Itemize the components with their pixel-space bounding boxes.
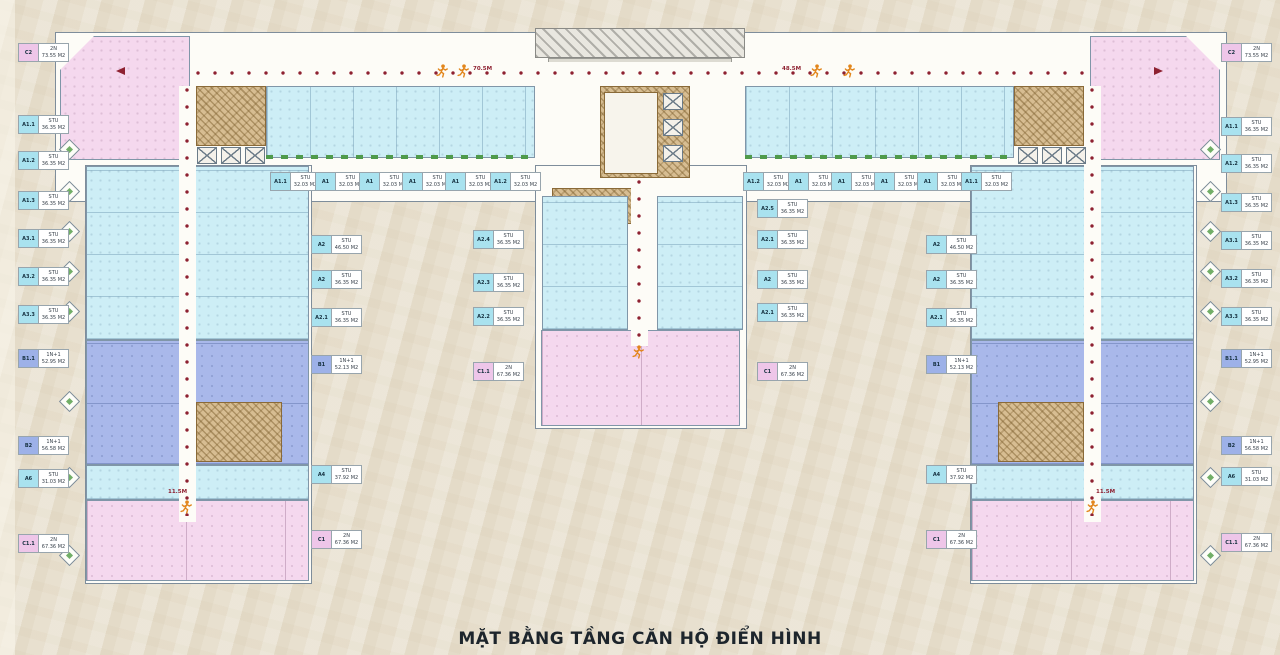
unit-info: STU36.35 M2 xyxy=(39,268,68,285)
unit-code: B1.1 xyxy=(1222,350,1242,367)
unit-code: A2 xyxy=(927,236,947,253)
unit-info: STU36.35 M2 xyxy=(947,271,976,288)
elevator-icon xyxy=(1066,147,1086,164)
unit-info: 1N+152.95 M2 xyxy=(39,350,68,367)
unit-chip-B2: B21N+156.58 M2 xyxy=(1222,437,1271,454)
unit-code: B2 xyxy=(19,437,39,454)
unit-info: STU36.35 M2 xyxy=(778,231,807,248)
escape-runner-icon xyxy=(457,63,470,77)
unit-chip-C1.1: C1.12N67.36 M2 xyxy=(19,535,68,552)
unit-code: C1 xyxy=(927,531,947,548)
balcony-strip-right xyxy=(745,155,1014,159)
unit-code: A4 xyxy=(927,466,947,483)
unit-area: 36.35 M2 xyxy=(781,209,804,215)
unit-info: 2N67.36 M2 xyxy=(778,363,807,380)
unit-chip-C1.1: C1.12N67.36 M2 xyxy=(1222,534,1271,551)
unit-code: C1 xyxy=(312,531,332,548)
unit-code: A2.1 xyxy=(312,309,332,326)
unit-code: A1.1 xyxy=(271,173,291,190)
unit-area: 36.35 M2 xyxy=(42,125,65,131)
unit-info: STU37.92 M2 xyxy=(947,466,976,483)
elevator-icon xyxy=(663,93,683,110)
unit-code: B1.1 xyxy=(19,350,39,367)
unit-info: STU36.35 M2 xyxy=(778,304,807,321)
unit-info: STU36.35 M2 xyxy=(1242,194,1271,211)
unit-code: A1.1 xyxy=(19,116,39,133)
left-wing-2br xyxy=(86,500,309,581)
unit-area: 52.13 M2 xyxy=(335,365,358,371)
unit-info: STU36.35 M2 xyxy=(39,230,68,247)
unit-area: 52.95 M2 xyxy=(1245,359,1268,365)
unit-info: 1N+152.13 M2 xyxy=(332,356,361,373)
unit-chip-A1.2: A1.2STU32.03 M2 xyxy=(744,173,793,190)
bay-window xyxy=(1200,467,1221,488)
unit-chip-A1.2: A1.2STU32.03 M2 xyxy=(491,173,540,190)
unit-area: 36.35 M2 xyxy=(335,318,358,324)
unit-code: A2.5 xyxy=(758,200,778,217)
unit-chip-A1.1: A1.1STU32.03 M2 xyxy=(962,173,1011,190)
unit-code: A1 xyxy=(403,173,423,190)
unit-chip-A3.2: A3.2STU36.35 M2 xyxy=(19,268,68,285)
unit-code: C1.1 xyxy=(474,363,494,380)
unit-area: 36.35 M2 xyxy=(42,277,65,283)
unit-area: 36.35 M2 xyxy=(42,315,65,321)
unit-info: 1N+152.95 M2 xyxy=(1242,350,1271,367)
unit-chip-A1: A1STU32.03 M2 xyxy=(832,173,881,190)
unit-info: STU36.35 M2 xyxy=(494,308,523,325)
unit-code: A1.3 xyxy=(1222,194,1242,211)
unit-chip-C2: C22N73.55 M2 xyxy=(1222,44,1271,61)
elevator-icon xyxy=(663,119,683,136)
unit-code: A3.2 xyxy=(1222,270,1242,287)
unit-info: 1N+152.13 M2 xyxy=(947,356,976,373)
unit-code: A1.2 xyxy=(744,173,764,190)
unit-chip-A6: A6STU31.03 M2 xyxy=(1222,468,1271,485)
unit-chip-A2: A2STU46.50 M2 xyxy=(927,236,976,253)
unit-chip-A6: A6STU31.03 M2 xyxy=(19,470,68,487)
unit-area: 67.36 M2 xyxy=(335,540,358,546)
escape-path-dots xyxy=(185,88,189,516)
unit-chip-A3.3: A3.3STU36.35 M2 xyxy=(1222,308,1271,325)
unit-code: A2.2 xyxy=(474,308,494,325)
unit-chip-A2: A2STU36.35 M2 xyxy=(758,271,807,288)
unit-info: STU36.35 M2 xyxy=(494,274,523,291)
unit-area: 36.35 M2 xyxy=(1245,164,1268,170)
unit-chip-A1: A1STU32.03 M2 xyxy=(403,173,452,190)
unit-code: A1.2 xyxy=(1222,155,1242,172)
bay-window xyxy=(59,391,80,412)
unit-chip-A2.1: A2.1STU36.35 M2 xyxy=(312,309,361,326)
unit-area: 67.36 M2 xyxy=(950,540,973,546)
unit-code: A3.3 xyxy=(1222,308,1242,325)
unit-code: A6 xyxy=(19,470,39,487)
bay-window xyxy=(1200,301,1221,322)
stair-core-right-wing xyxy=(998,402,1084,462)
unit-area: 73.55 M2 xyxy=(1245,53,1268,59)
unit-code: B1 xyxy=(927,356,947,373)
escape-path-dots xyxy=(196,71,1084,75)
escape-runner-icon xyxy=(843,63,856,77)
unit-info: 2N67.36 M2 xyxy=(947,531,976,548)
unit-code: A2 xyxy=(312,271,332,288)
elevator-icon xyxy=(663,145,683,162)
unit-chip-B1: B11N+152.13 M2 xyxy=(312,356,361,373)
escape-runner-icon xyxy=(180,499,193,513)
escape-runner-icon xyxy=(436,63,449,77)
bay-window xyxy=(1200,261,1221,282)
unit-area: 36.35 M2 xyxy=(781,280,804,286)
unit-info: STU36.35 M2 xyxy=(1242,270,1271,287)
unit-chip-C1.1: C1.12N67.36 M2 xyxy=(474,363,523,380)
unit-chip-A3.1: A3.1STU36.35 M2 xyxy=(19,230,68,247)
left-wing-studio-a4 xyxy=(86,465,309,500)
unit-code: A6 xyxy=(1222,468,1242,485)
unit-chip-A1.2: A1.2STU36.35 M2 xyxy=(19,152,68,169)
unit-area: 56.58 M2 xyxy=(1245,446,1268,452)
unit-chip-A2.1: A2.1STU36.35 M2 xyxy=(758,231,807,248)
unit-code: A2 xyxy=(927,271,947,288)
unit-chip-A1.3: A1.3STU36.35 M2 xyxy=(19,192,68,209)
right-wing-studios xyxy=(971,166,1194,340)
unit-info: STU36.35 M2 xyxy=(1242,118,1271,135)
unit-chip-A1: A1STU32.03 M2 xyxy=(316,173,365,190)
left-wing-studios xyxy=(86,166,309,340)
unit-code: A1.1 xyxy=(1222,118,1242,135)
unit-code: C2 xyxy=(19,44,39,61)
unit-chip-A1: A1STU32.03 M2 xyxy=(875,173,924,190)
unit-code: A1 xyxy=(360,173,380,190)
page-title: MẶT BẰNG TẦNG CĂN HỘ ĐIỂN HÌNH xyxy=(0,629,1280,649)
unit-chip-A1: A1STU32.03 M2 xyxy=(360,173,409,190)
unit-area: 37.92 M2 xyxy=(335,475,358,481)
elevator-icon xyxy=(245,147,265,164)
unit-chip-A1: A1STU32.03 M2 xyxy=(789,173,838,190)
unit-info: STU36.35 M2 xyxy=(39,306,68,323)
escape-path-dots xyxy=(1090,88,1094,516)
unit-code: A3.1 xyxy=(1222,232,1242,249)
unit-chip-A2.5: A2.5STU36.35 M2 xyxy=(758,200,807,217)
unit-chip-A2.1: A2.1STU36.35 M2 xyxy=(927,309,976,326)
unit-area: 36.35 M2 xyxy=(1245,203,1268,209)
unit-code: A1 xyxy=(918,173,938,190)
unit-area: 36.35 M2 xyxy=(497,240,520,246)
unit-info: STU36.35 M2 xyxy=(39,116,68,133)
unit-info: STU36.35 M2 xyxy=(1242,232,1271,249)
unit-info: STU32.03 M2 xyxy=(511,173,540,190)
unit-area: 32.03 M2 xyxy=(985,182,1008,188)
unit-area: 46.50 M2 xyxy=(950,245,973,251)
unit-chip-A4: A4STU37.92 M2 xyxy=(312,466,361,483)
unit-info: STU36.35 M2 xyxy=(332,271,361,288)
bay-window xyxy=(1200,221,1221,242)
unit-chip-C1: C12N67.36 M2 xyxy=(312,531,361,548)
unit-c2-right xyxy=(1090,36,1220,160)
escape-runner-icon xyxy=(1086,499,1099,513)
unit-chip-A2: A2STU36.35 M2 xyxy=(312,271,361,288)
escape-arrow-icon xyxy=(1154,67,1163,75)
unit-info: STU36.35 M2 xyxy=(1242,308,1271,325)
corridor-distance-label: 11.5M xyxy=(168,489,187,495)
unit-area: 31.03 M2 xyxy=(42,479,65,485)
escape-runner-icon xyxy=(632,344,645,358)
unit-chip-A2.1: A2.1STU36.35 M2 xyxy=(758,304,807,321)
unit-info: STU37.92 M2 xyxy=(332,466,361,483)
unit-area: 36.35 M2 xyxy=(781,313,804,319)
unit-area: 36.35 M2 xyxy=(950,280,973,286)
unit-chip-A3.3: A3.3STU36.35 M2 xyxy=(19,306,68,323)
unit-code: A1.3 xyxy=(19,192,39,209)
unit-code: A1.2 xyxy=(19,152,39,169)
unit-code: B2 xyxy=(1222,437,1242,454)
unit-area: 32.03 M2 xyxy=(294,182,317,188)
unit-area: 36.35 M2 xyxy=(1245,317,1268,323)
unit-chip-A2.3: A2.3STU36.35 M2 xyxy=(474,274,523,291)
stair-core-top-left xyxy=(196,86,266,146)
center-studios-left xyxy=(542,196,628,330)
escape-path-dots xyxy=(637,180,641,342)
unit-area: 32.03 M2 xyxy=(514,182,537,188)
unit-info: 2N67.36 M2 xyxy=(494,363,523,380)
page-edge-strip xyxy=(0,0,15,655)
unit-area: 32.03 M2 xyxy=(339,182,362,188)
escape-arrow-icon xyxy=(116,67,125,75)
unit-chip-A3.1: A3.1STU36.35 M2 xyxy=(1222,232,1271,249)
unit-info: 2N67.36 M2 xyxy=(332,531,361,548)
unit-code: C1.1 xyxy=(19,535,39,552)
unit-info: STU36.35 M2 xyxy=(494,231,523,248)
unit-chip-A1.1: A1.1STU36.35 M2 xyxy=(19,116,68,133)
unit-code: A1 xyxy=(316,173,336,190)
unit-chip-A2.2: A2.2STU36.35 M2 xyxy=(474,308,523,325)
unit-area: 36.35 M2 xyxy=(1245,279,1268,285)
unit-code: A3.1 xyxy=(19,230,39,247)
unit-area: 67.36 M2 xyxy=(781,372,804,378)
unit-area: 67.36 M2 xyxy=(497,372,520,378)
studio-row-right xyxy=(745,86,1014,158)
corridor-distance-label: 48.5M xyxy=(782,66,801,72)
unit-chip-B2: B21N+156.58 M2 xyxy=(19,437,68,454)
unit-info: 2N73.55 M2 xyxy=(39,44,68,61)
unit-chip-C2: C22N73.55 M2 xyxy=(19,44,68,61)
unit-area: 36.35 M2 xyxy=(42,239,65,245)
unit-code: C1 xyxy=(758,363,778,380)
unit-area: 73.55 M2 xyxy=(42,53,65,59)
unit-area: 52.13 M2 xyxy=(950,365,973,371)
unit-chip-A3.2: A3.2STU36.35 M2 xyxy=(1222,270,1271,287)
unit-chip-A2.4: A2.4STU36.35 M2 xyxy=(474,231,523,248)
unit-area: 36.35 M2 xyxy=(781,240,804,246)
unit-chip-A2: A2STU46.50 M2 xyxy=(312,236,361,253)
unit-code: B1 xyxy=(312,356,332,373)
center-studios-right xyxy=(657,196,743,330)
unit-code: A2 xyxy=(758,271,778,288)
unit-area: 36.35 M2 xyxy=(497,283,520,289)
unit-area: 52.95 M2 xyxy=(42,359,65,365)
unit-code: A3.2 xyxy=(19,268,39,285)
unit-code: A1 xyxy=(446,173,466,190)
unit-chip-B1.1: B1.11N+152.95 M2 xyxy=(19,350,68,367)
unit-info: STU46.50 M2 xyxy=(332,236,361,253)
floor-plan: 70.5M48.5M11.5M11.5MC22N73.55 M2A1.1STU3… xyxy=(0,0,1280,655)
bay-window xyxy=(1200,545,1221,566)
unit-info: STU32.03 M2 xyxy=(982,173,1011,190)
unit-area: 36.35 M2 xyxy=(1245,241,1268,247)
elevator-icon xyxy=(221,147,241,164)
unit-code: A3.3 xyxy=(19,306,39,323)
unit-chip-A1.1: A1.1STU36.35 M2 xyxy=(1222,118,1271,135)
unit-chip-A1: A1STU32.03 M2 xyxy=(446,173,495,190)
unit-area: 36.35 M2 xyxy=(497,317,520,323)
unit-info: 2N73.55 M2 xyxy=(1242,44,1271,61)
unit-code: A4 xyxy=(312,466,332,483)
escape-runner-icon xyxy=(810,63,823,77)
unit-info: 2N67.36 M2 xyxy=(1242,534,1271,551)
unit-chip-A1.3: A1.3STU36.35 M2 xyxy=(1222,194,1271,211)
unit-code: A1.1 xyxy=(962,173,982,190)
unit-area: 32.03 M2 xyxy=(767,182,790,188)
unit-info: STU36.35 M2 xyxy=(778,200,807,217)
central-core-lobby xyxy=(604,92,658,174)
unit-info: STU36.35 M2 xyxy=(947,309,976,326)
stair-core-top-right xyxy=(1014,86,1084,146)
unit-code: A2.1 xyxy=(758,231,778,248)
right-wing-studio-a4 xyxy=(971,465,1194,500)
unit-code: A1 xyxy=(875,173,895,190)
unit-area: 36.35 M2 xyxy=(1245,127,1268,133)
unit-area: 46.50 M2 xyxy=(335,245,358,251)
bay-window xyxy=(1200,391,1221,412)
unit-code: C2 xyxy=(1222,44,1242,61)
unit-code: C1.1 xyxy=(1222,534,1242,551)
unit-code: A1 xyxy=(832,173,852,190)
unit-c2-left xyxy=(60,36,190,160)
unit-code: A2 xyxy=(312,236,332,253)
unit-info: 1N+156.58 M2 xyxy=(39,437,68,454)
unit-area: 36.35 M2 xyxy=(335,280,358,286)
elevator-icon xyxy=(1042,147,1062,164)
unit-code: A1 xyxy=(789,173,809,190)
unit-info: STU31.03 M2 xyxy=(1242,468,1271,485)
unit-chip-A1.1: A1.1STU32.03 M2 xyxy=(271,173,320,190)
elevator-icon xyxy=(197,147,217,164)
unit-code: A2.1 xyxy=(927,309,947,326)
elevator-icon xyxy=(1018,147,1038,164)
unit-code: A2.4 xyxy=(474,231,494,248)
unit-code: A2.3 xyxy=(474,274,494,291)
studio-row-left xyxy=(266,86,535,158)
unit-chip-A1.2: A1.2STU36.35 M2 xyxy=(1222,155,1271,172)
unit-area: 31.03 M2 xyxy=(1245,477,1268,483)
unit-area: 36.35 M2 xyxy=(42,161,65,167)
unit-info: STU36.35 M2 xyxy=(39,192,68,209)
unit-chip-A4: A4STU37.92 M2 xyxy=(927,466,976,483)
unit-chip-B1.1: B1.11N+152.95 M2 xyxy=(1222,350,1271,367)
unit-chip-B1: B11N+152.13 M2 xyxy=(927,356,976,373)
unit-area: 67.36 M2 xyxy=(1245,543,1268,549)
unit-info: STU36.35 M2 xyxy=(778,271,807,288)
unit-code: A2.1 xyxy=(758,304,778,321)
unit-chip-A1: A1STU32.03 M2 xyxy=(918,173,967,190)
unit-chip-A2: A2STU36.35 M2 xyxy=(927,271,976,288)
unit-info: STU36.35 M2 xyxy=(39,152,68,169)
stair-core-left-wing xyxy=(196,402,282,462)
unit-code: A1.2 xyxy=(491,173,511,190)
unit-area: 56.58 M2 xyxy=(42,446,65,452)
entrance-canopy xyxy=(535,28,745,58)
unit-chip-C1: C12N67.36 M2 xyxy=(927,531,976,548)
balcony-strip-left xyxy=(266,155,535,159)
unit-area: 32.03 M2 xyxy=(469,182,492,188)
corridor-distance-label: 70.5M xyxy=(473,66,492,72)
unit-area: 67.36 M2 xyxy=(42,544,65,550)
unit-info: STU31.03 M2 xyxy=(39,470,68,487)
right-wing-2br xyxy=(971,500,1194,581)
unit-area: 36.35 M2 xyxy=(950,318,973,324)
unit-info: STU36.35 M2 xyxy=(332,309,361,326)
unit-area: 32.03 M2 xyxy=(941,182,964,188)
unit-area: 37.92 M2 xyxy=(950,475,973,481)
unit-info: STU46.50 M2 xyxy=(947,236,976,253)
unit-info: 1N+156.58 M2 xyxy=(1242,437,1271,454)
unit-chip-C1: C12N67.36 M2 xyxy=(758,363,807,380)
unit-info: 2N67.36 M2 xyxy=(39,535,68,552)
corridor-distance-label: 11.5M xyxy=(1096,489,1115,495)
unit-info: STU36.35 M2 xyxy=(1242,155,1271,172)
unit-area: 36.35 M2 xyxy=(42,201,65,207)
